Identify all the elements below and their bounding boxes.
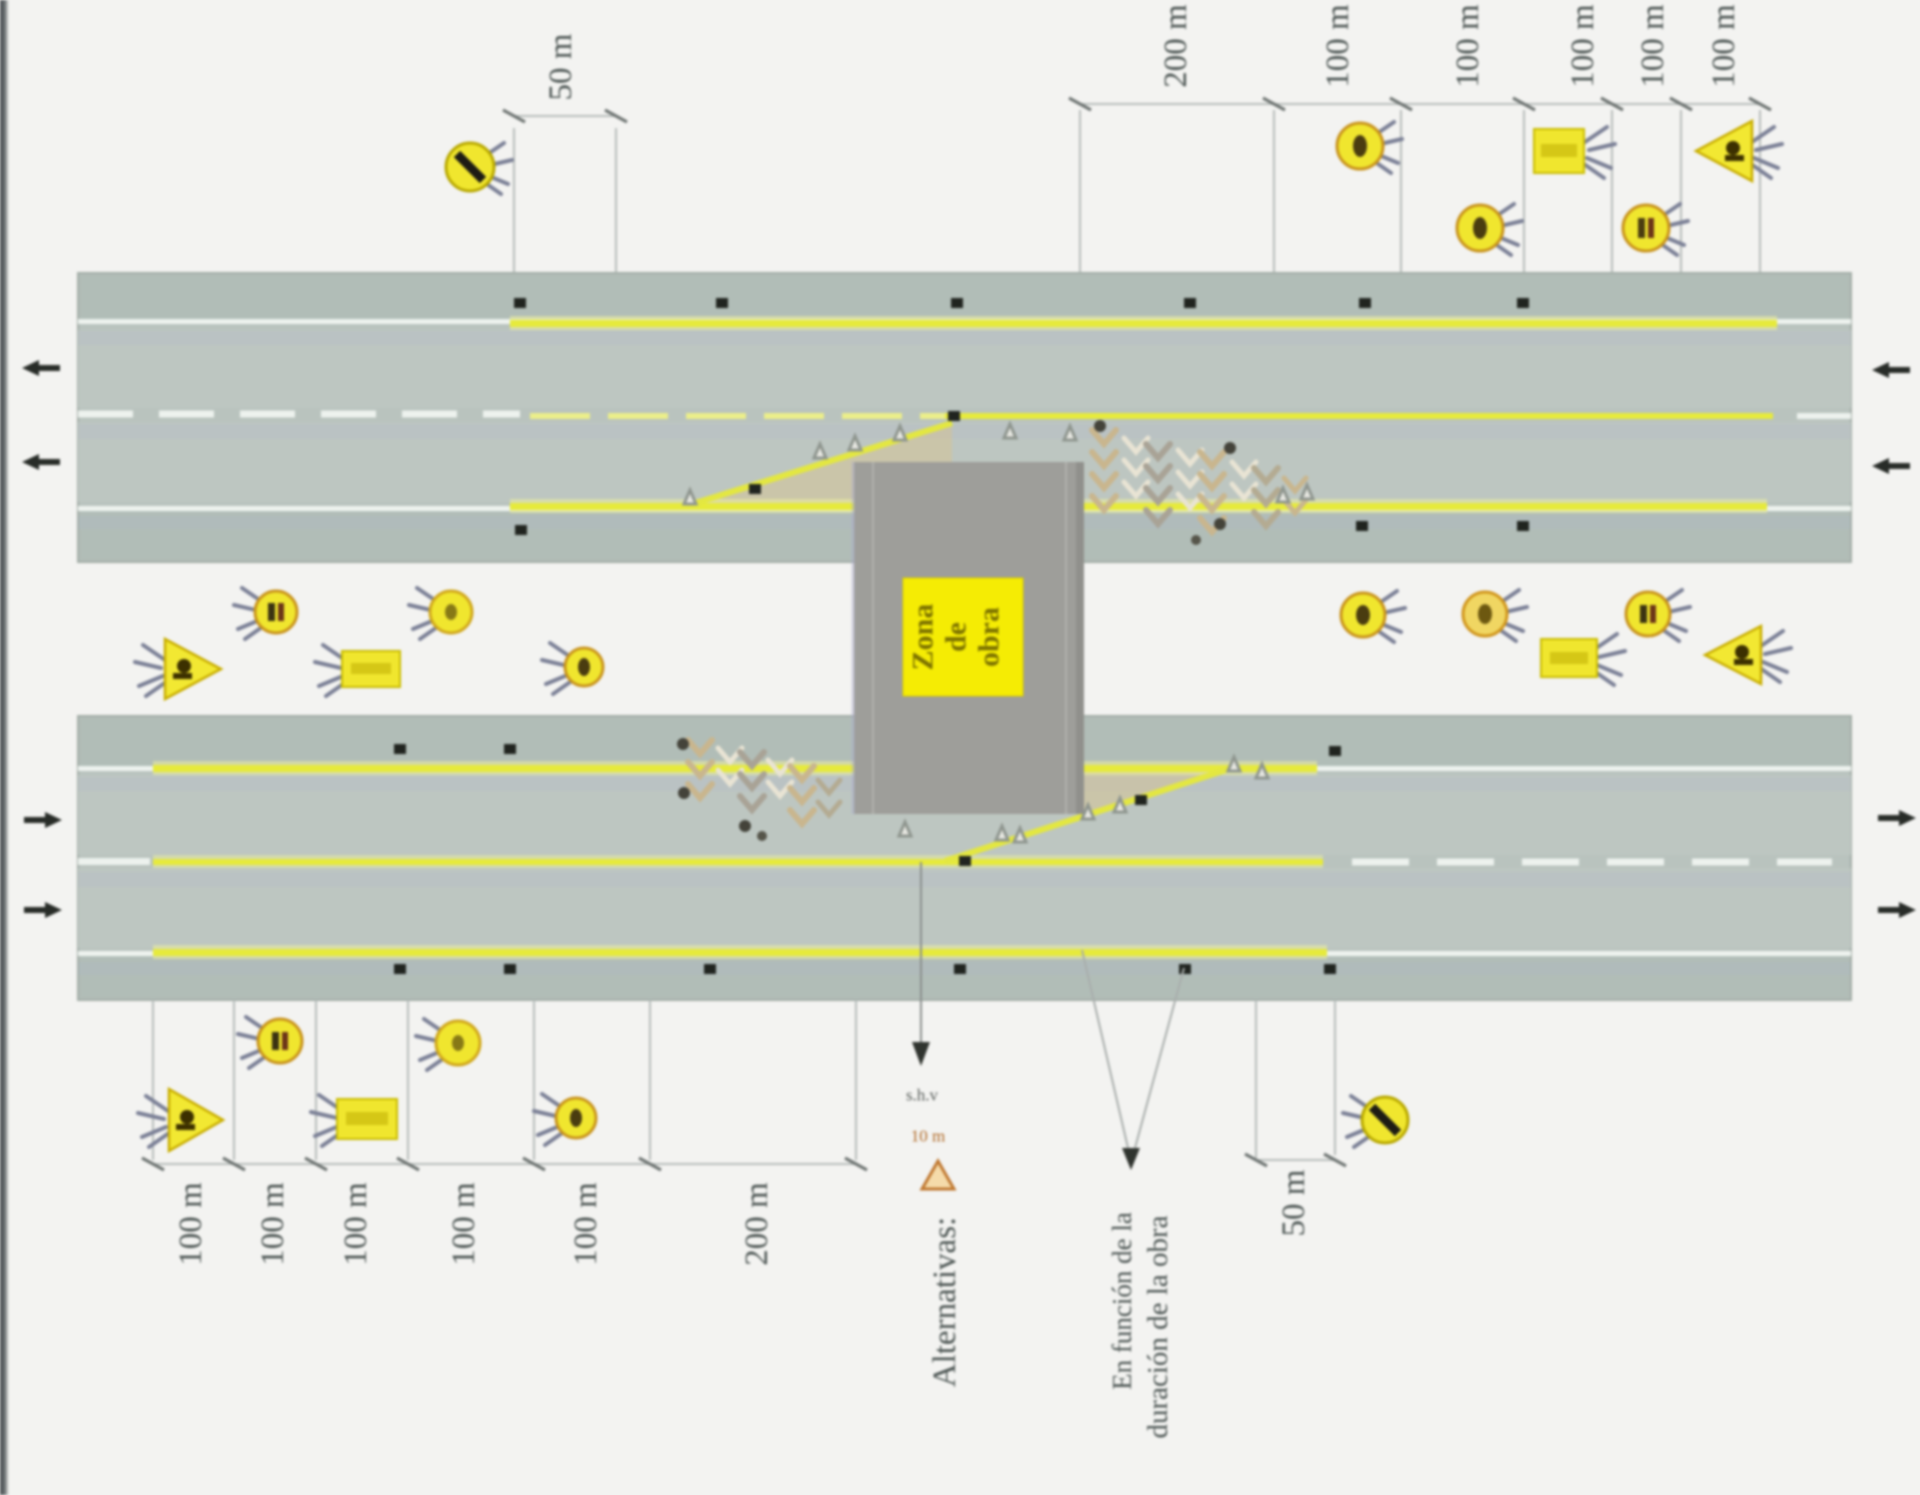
svg-text:100 m: 100 m — [173, 1182, 209, 1266]
svg-text:100 m: 100 m — [1706, 4, 1742, 88]
svg-text:200 m: 200 m — [739, 1182, 775, 1266]
svg-text:10 m: 10 m — [911, 1127, 945, 1146]
svg-text:100 m: 100 m — [1565, 4, 1601, 88]
svg-text:100 m: 100 m — [1450, 4, 1486, 88]
svg-text:100 m: 100 m — [1635, 4, 1671, 88]
svg-text:100 m: 100 m — [446, 1182, 482, 1266]
svg-text:100 m: 100 m — [1320, 4, 1356, 88]
svg-text:100 m: 100 m — [568, 1182, 604, 1266]
svg-text:duración de la obra: duración de la obra — [1142, 1215, 1174, 1438]
svg-text:s.h.v: s.h.v — [906, 1086, 939, 1105]
svg-text:obra: obra — [973, 607, 1006, 667]
svg-text:En función de la: En función de la — [1107, 1212, 1137, 1390]
svg-text:50 m: 50 m — [1276, 1169, 1312, 1236]
svg-text:Alternativas:: Alternativas: — [927, 1217, 963, 1387]
svg-text:Zona: Zona — [907, 604, 940, 671]
svg-text:50 m: 50 m — [543, 33, 579, 100]
svg-text:100 m: 100 m — [255, 1182, 291, 1266]
svg-text:200 m: 200 m — [1158, 4, 1194, 88]
svg-text:100 m: 100 m — [338, 1182, 374, 1266]
svg-text:de: de — [940, 622, 973, 652]
